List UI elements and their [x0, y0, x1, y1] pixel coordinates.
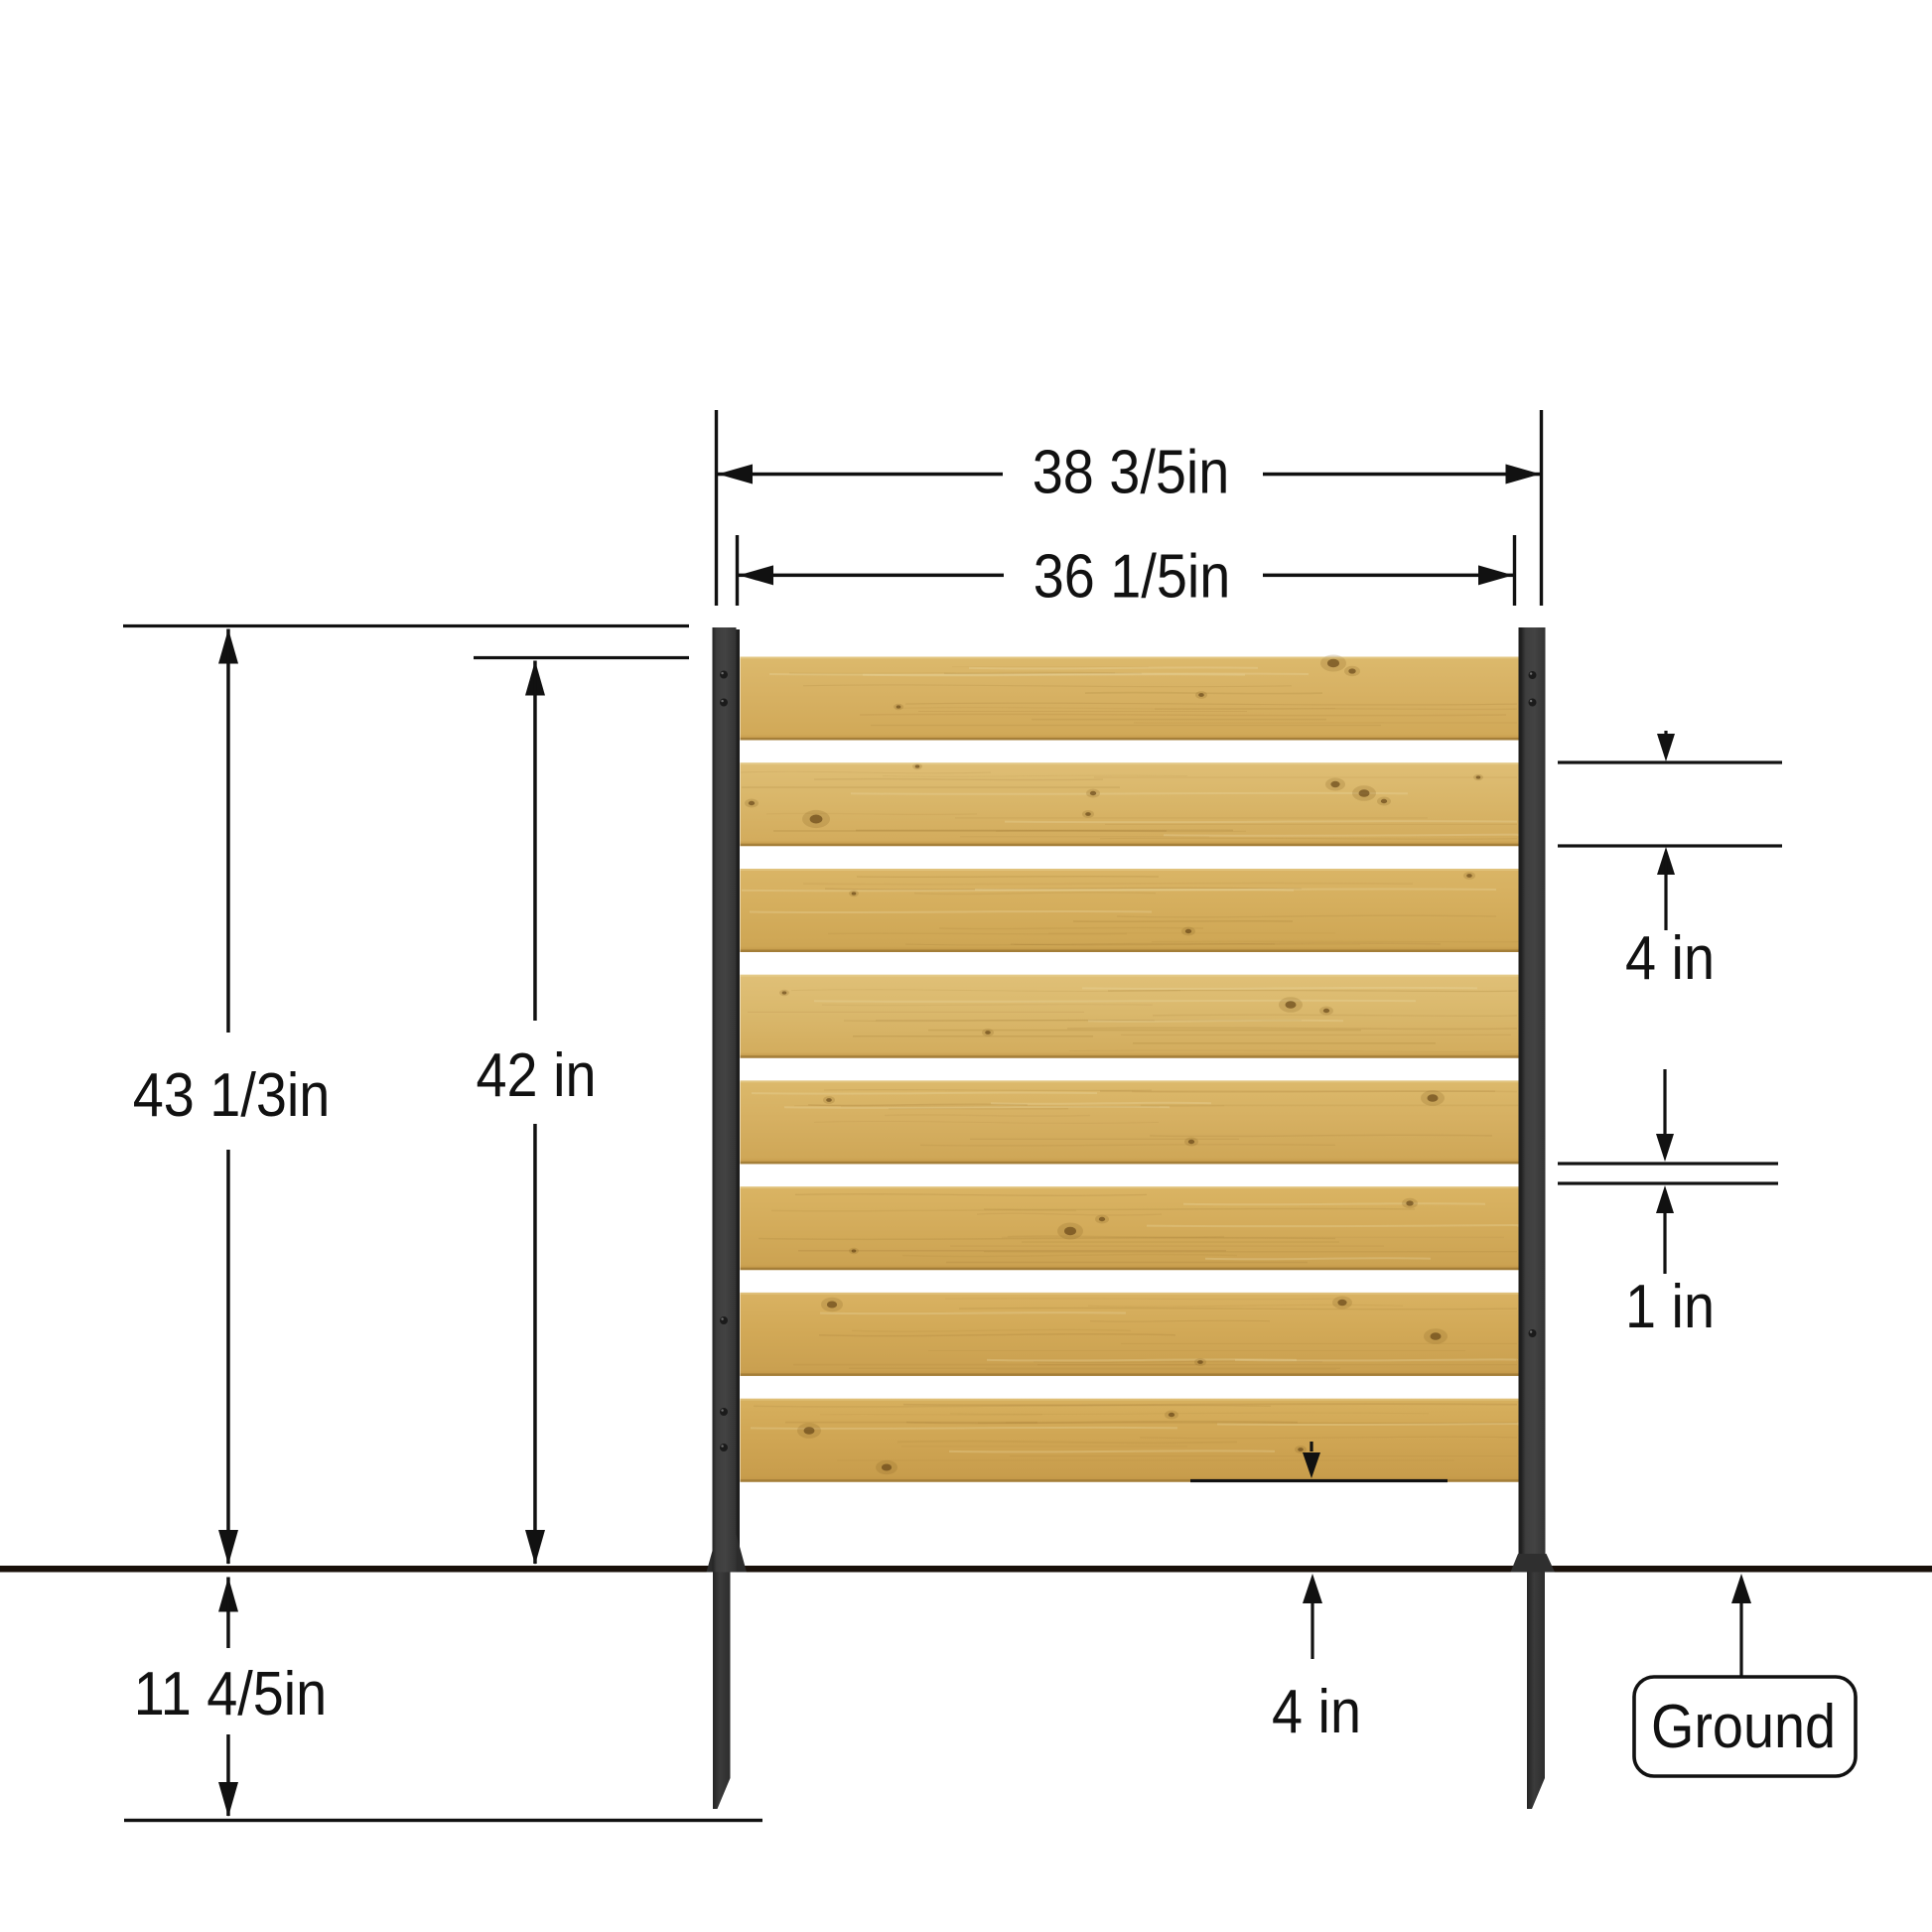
svg-text:36 1/5in: 36 1/5in: [1034, 543, 1231, 611]
svg-text:Ground: Ground: [1651, 1693, 1836, 1760]
svg-text:43 1/3in: 43 1/3in: [133, 1061, 331, 1129]
svg-text:38 3/5in: 38 3/5in: [1033, 439, 1230, 506]
svg-text:4 in: 4 in: [1625, 924, 1715, 992]
svg-text:1 in: 1 in: [1625, 1273, 1715, 1340]
svg-text:42 in: 42 in: [477, 1041, 597, 1109]
svg-text:4 in: 4 in: [1272, 1678, 1361, 1745]
svg-text:11 4/5in: 11 4/5in: [134, 1660, 327, 1727]
